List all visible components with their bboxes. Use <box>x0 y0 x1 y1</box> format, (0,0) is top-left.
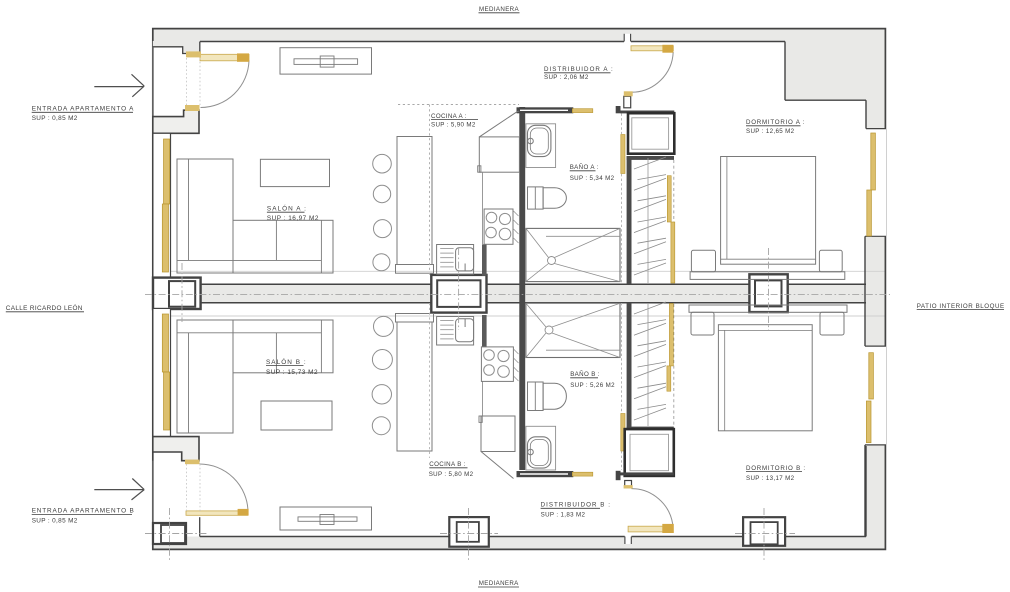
svg-text:SUP : 13,17 M2: SUP : 13,17 M2 <box>746 475 795 482</box>
svg-text:SALÓN A :: SALÓN A : <box>267 203 307 212</box>
svg-text:CALLE RICARDO LEÓN: CALLE RICARDO LEÓN <box>6 303 83 312</box>
svg-text:SUP : 15,73 M2: SUP : 15,73 M2 <box>266 369 318 376</box>
svg-text:BAÑO A :: BAÑO A : <box>570 164 599 171</box>
svg-text:DISTRIBUIDOR B :: DISTRIBUIDOR B : <box>541 502 611 509</box>
svg-text:MEDIANERA: MEDIANERA <box>479 580 519 587</box>
svg-text:DISTRIBUIDOR A :: DISTRIBUIDOR A : <box>544 66 614 73</box>
svg-text:SUP : 0,85 M2: SUP : 0,85 M2 <box>32 115 78 122</box>
svg-text:ENTRADA APARTAMENTO A: ENTRADA APARTAMENTO A <box>32 106 135 113</box>
svg-text:SUP : 1,83 M2: SUP : 1,83 M2 <box>541 512 586 519</box>
svg-text:COCINA B :: COCINA B : <box>429 461 466 468</box>
svg-text:SUP : 12,65 M2: SUP : 12,65 M2 <box>746 128 795 135</box>
svg-text:SALÓN B :: SALÓN B : <box>266 357 307 366</box>
svg-text:SUP : 5,26 M2: SUP : 5,26 M2 <box>570 382 615 389</box>
svg-text:PATIO INTERIOR BLOQUE: PATIO INTERIOR BLOQUE <box>917 303 1005 310</box>
svg-text:DORMITORIO B :: DORMITORIO B : <box>746 465 806 472</box>
svg-text:MEDIANERA: MEDIANERA <box>479 6 519 13</box>
svg-text:SUP : 5,34 M2: SUP : 5,34 M2 <box>570 175 615 182</box>
svg-text:SUP : 0,85 M2: SUP : 0,85 M2 <box>32 518 78 525</box>
svg-text:ENTRADA APARTAMENTO B: ENTRADA APARTAMENTO B <box>32 508 135 515</box>
svg-text:COCINA A :: COCINA A : <box>431 113 467 120</box>
svg-text:BAÑO B :: BAÑO B : <box>570 371 600 378</box>
svg-text:SUP : 2,06 M2: SUP : 2,06 M2 <box>544 74 589 81</box>
svg-text:SUP : 16,97 M2: SUP : 16,97 M2 <box>267 215 319 222</box>
svg-text:SUP : 5,80 M2: SUP : 5,80 M2 <box>429 471 474 478</box>
svg-text:DORMITORIO A :: DORMITORIO A : <box>746 119 805 126</box>
svg-text:SUP : 5,90 M2: SUP : 5,90 M2 <box>431 121 476 128</box>
